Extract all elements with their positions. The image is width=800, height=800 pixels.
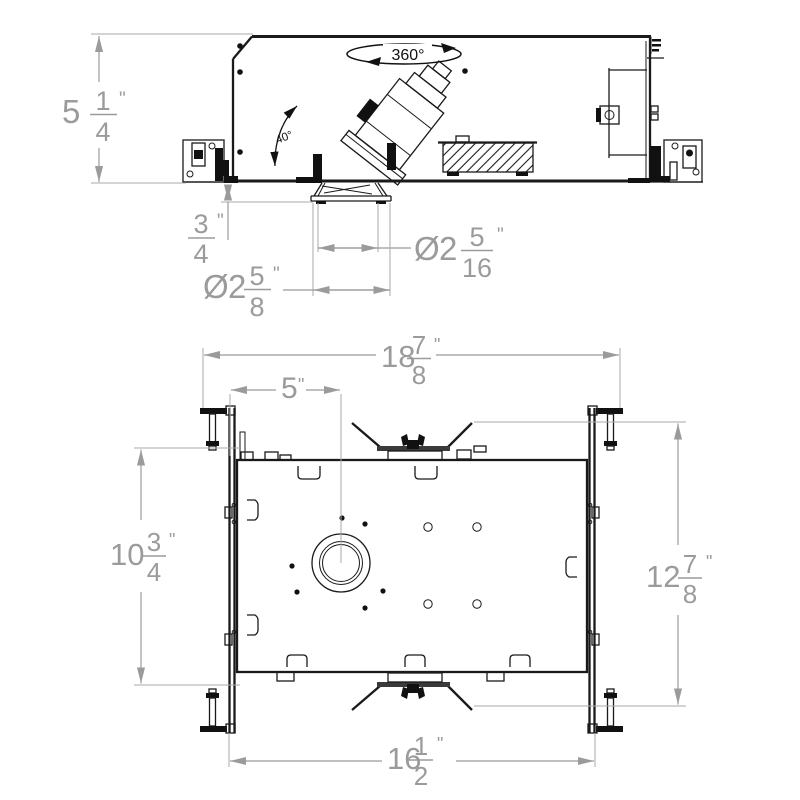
rotation-label: 360° [391, 47, 424, 64]
rotation-arrow-left-icon [366, 57, 381, 66]
plan-view [200, 406, 623, 733]
dim-unit: " [437, 734, 443, 754]
dim-text: 8 [683, 579, 697, 609]
dim-unit: " [434, 335, 440, 355]
dim-text: 3 [147, 527, 161, 557]
left-hanger-bar [225, 408, 245, 733]
right-hanger-bar [588, 408, 599, 733]
knockout-tabs [247, 466, 577, 667]
driver-box [438, 136, 537, 176]
rivet-hole [237, 43, 243, 49]
dim-text: 5 [469, 222, 484, 252]
right-mounting-bracket [650, 140, 702, 182]
technical-drawing-page: 360° 40° 5 1 4 " 3 4 [0, 0, 800, 800]
dim-unit: " [217, 211, 224, 232]
dim-text: 4 [193, 239, 208, 269]
tbar-bracket-bottom-right [588, 689, 623, 733]
dim-trim-depth: 3 4 " [188, 185, 313, 270]
left-mounting-bracket [183, 140, 238, 183]
dim-text: 7 [412, 330, 426, 360]
foot-pad [628, 178, 650, 183]
tilt-label: 40° [274, 129, 294, 146]
dim-housing-length: 10 3 4 " [110, 448, 240, 685]
mounting-plate [237, 446, 587, 681]
dim-text: 5 [249, 261, 264, 291]
plan-view-dimensions: 18 7 8 " 5 " 10 3 4 " [110, 330, 712, 791]
dim-text: 4 [95, 117, 110, 147]
dim-overall-width: 18 7 8 " [203, 330, 620, 408]
collar-slider-bottom [352, 673, 472, 710]
bracket-latch [215, 148, 223, 181]
dim-text: 16 [462, 253, 492, 283]
dim-bar-span: 16 1 2 " [229, 731, 595, 791]
dim-unit: " [169, 530, 175, 550]
dim-unit: " [273, 264, 280, 285]
dim-text: 7 [683, 549, 697, 579]
tbar-bracket-top-right [588, 406, 623, 450]
trim-ring [311, 183, 391, 204]
dim-trim-diameter: Ø 2 5 8 " [203, 203, 390, 322]
dim-text: 18 [381, 339, 415, 374]
rivet-hole [237, 69, 243, 75]
interior-frame [596, 68, 658, 158]
rivet-hole [462, 68, 468, 74]
lamp-body [355, 79, 443, 170]
dim-text: 5 [62, 93, 80, 130]
diameter-symbol: Ø [414, 230, 440, 267]
tilt-annotation: 40° [274, 106, 297, 166]
dim-unit: " [119, 89, 126, 110]
dim-aperture-diameter: Ø 2 5 16 " [318, 203, 504, 283]
side-elevation-view: 360° 40° [183, 36, 703, 204]
dim-text: 5 [281, 372, 298, 405]
dim-unit: " [497, 225, 504, 246]
drawing-canvas: 360° 40° 5 1 4 " 3 4 [0, 0, 800, 800]
dim-text: 12 [646, 559, 680, 594]
dim-text: 8 [412, 360, 426, 390]
rivet-hole [237, 149, 243, 155]
dim-text: 8 [249, 292, 264, 322]
dim-unit: " [298, 375, 304, 395]
rotation-arrow-right-icon [441, 43, 456, 53]
plate-holes [289, 515, 481, 610]
diameter-symbol: Ø [203, 268, 229, 305]
dim-text: 1 [414, 731, 428, 761]
dim-text: 10 [110, 537, 144, 572]
dim-unit: " [706, 552, 712, 572]
side-view-dimensions: 5 1 4 " 3 4 " Ø 2 5 16 [62, 34, 504, 322]
lamp-neck [406, 73, 446, 109]
dim-text: 2 [414, 761, 428, 791]
dim-text: 3 [193, 209, 208, 239]
collar-slider-top [352, 423, 472, 460]
rotation-annotation: 360° [347, 43, 461, 66]
dim-text: 4 [147, 557, 161, 587]
dim-text: 2 [228, 268, 246, 305]
dim-text: 2 [439, 230, 457, 267]
dim-center-offset: 5 " [230, 372, 341, 563]
dim-text: 1 [95, 86, 110, 116]
